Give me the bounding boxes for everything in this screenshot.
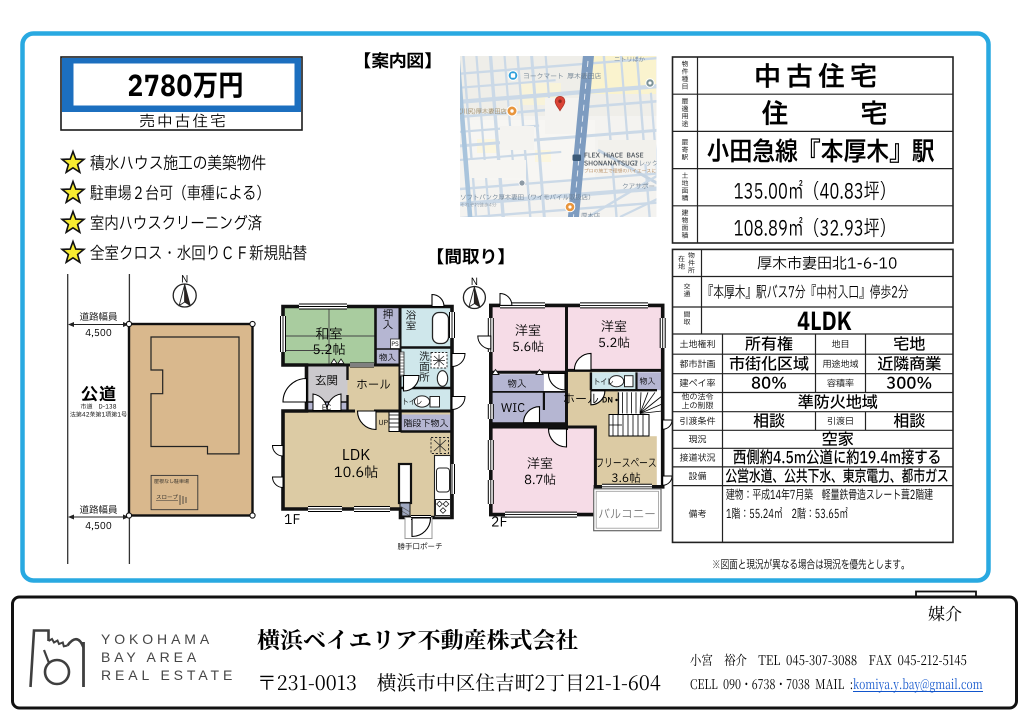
svg-text:YOKOHAMA: YOKOHAMA [101, 631, 213, 647]
svg-text:BAY AREA: BAY AREA [101, 649, 200, 665]
svg-text:REAL ESTATE: REAL ESTATE [101, 667, 236, 683]
